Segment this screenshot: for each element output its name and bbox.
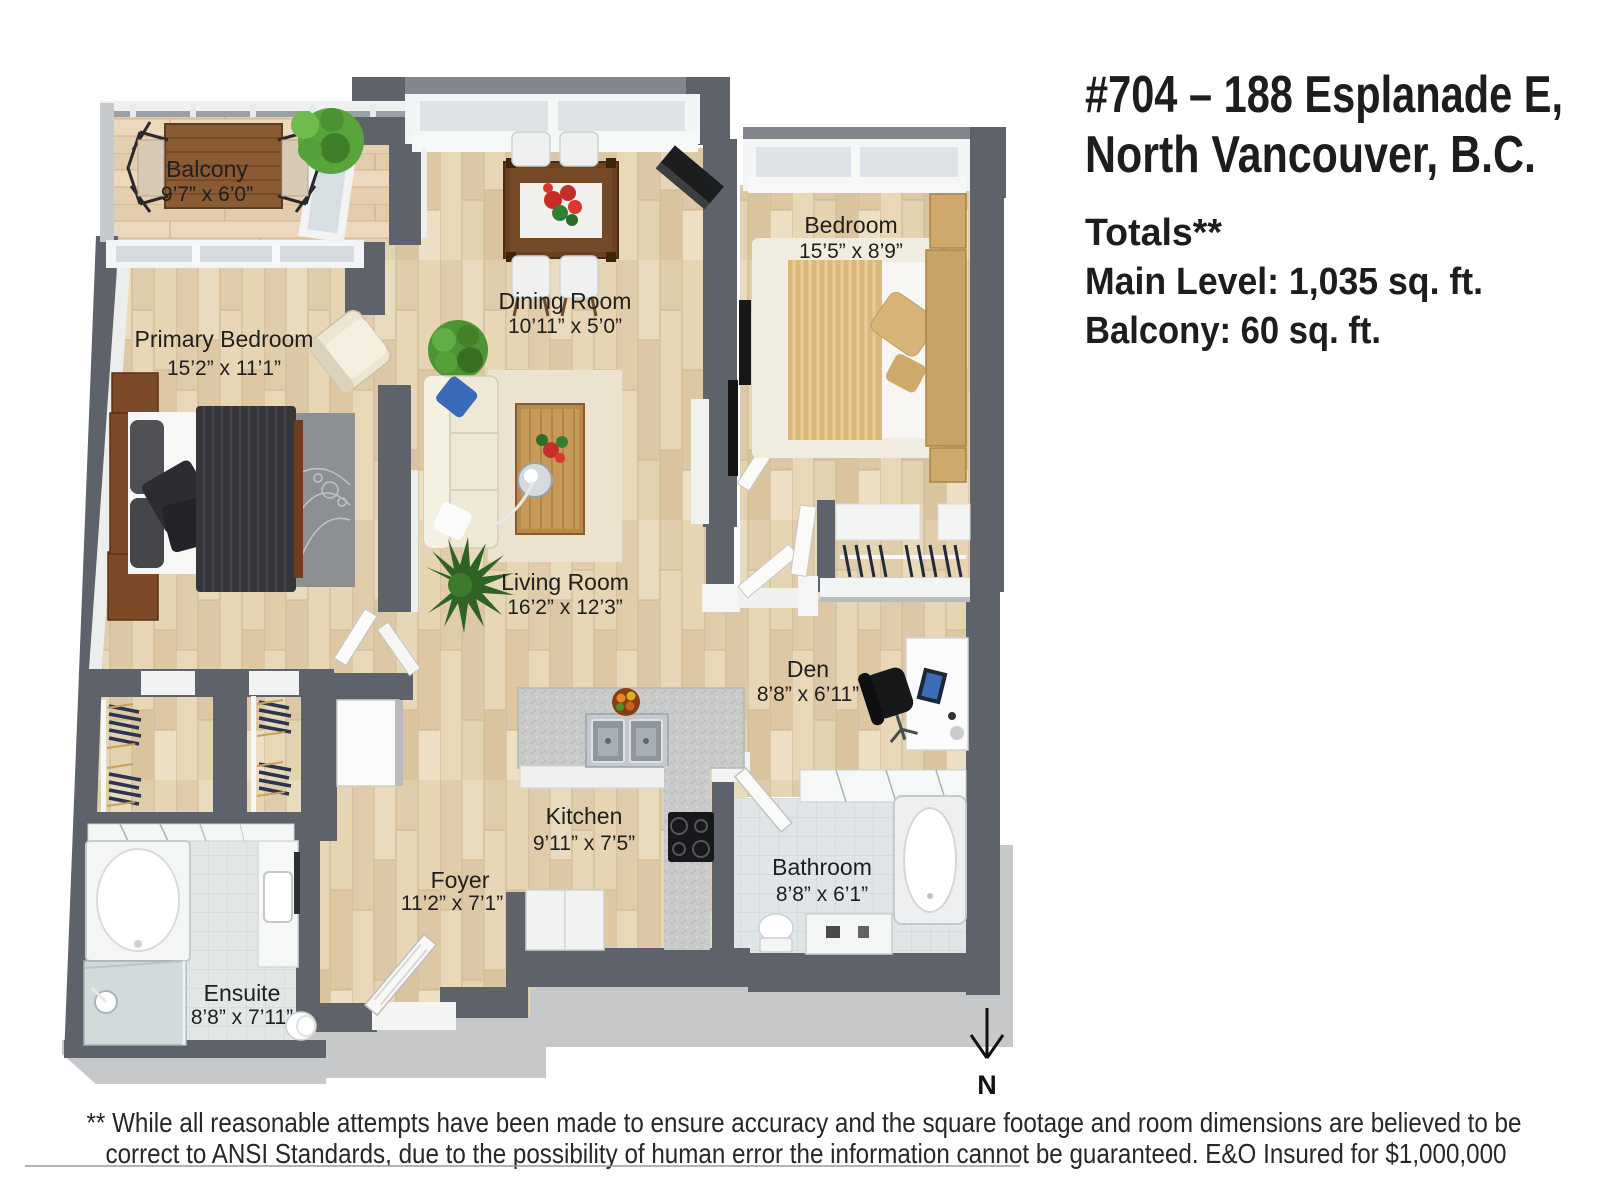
- svg-text:#704 – 188 Esplanade E,: #704 – 188 Esplanade E,: [1085, 66, 1563, 124]
- svg-text:15’5” x 8’9”: 15’5” x 8’9”: [799, 240, 903, 263]
- svg-text:correct to ANSI Standards, due: correct to ANSI Standards, due to the po…: [106, 1138, 1507, 1169]
- svg-text:** While all reasonable attemp: ** While all reasonable attempts have be…: [87, 1107, 1522, 1138]
- svg-text:16’2” x 12’3”: 16’2” x 12’3”: [507, 596, 623, 619]
- svg-text:9’11” x 7’5”: 9’11” x 7’5”: [533, 832, 635, 855]
- svg-text:Balcony: Balcony: [166, 156, 248, 182]
- svg-text:Ensuite: Ensuite: [204, 980, 281, 1006]
- svg-text:Bedroom: Bedroom: [804, 212, 897, 238]
- svg-text:Totals**: Totals**: [1085, 212, 1222, 254]
- svg-text:8’8” x 7’11”: 8’8” x 7’11”: [191, 1006, 293, 1029]
- svg-text:8’8” x 6’11”: 8’8” x 6’11”: [757, 683, 859, 706]
- svg-text:Bathroom: Bathroom: [772, 854, 872, 880]
- svg-text:10’11” x 5’0”: 10’11” x 5’0”: [508, 315, 622, 338]
- svg-text:15’2” x 11’1”: 15’2” x 11’1”: [167, 357, 281, 380]
- svg-text:Balcony: 60 sq. ft.: Balcony: 60 sq. ft.: [1085, 310, 1381, 352]
- svg-text:Main Level: 1,035 sq. ft.: Main Level: 1,035 sq. ft.: [1085, 261, 1483, 303]
- svg-text:9’7” x 6’0”: 9’7” x 6’0”: [161, 183, 253, 206]
- svg-text:Foyer: Foyer: [431, 867, 490, 893]
- svg-text:N: N: [977, 1070, 997, 1100]
- svg-text:11’2” x 7’1”: 11’2” x 7’1”: [401, 892, 503, 915]
- svg-text:8’8” x 6’1”: 8’8” x 6’1”: [776, 883, 868, 906]
- svg-text:Kitchen: Kitchen: [546, 803, 623, 829]
- svg-text:Den: Den: [787, 656, 829, 682]
- svg-text:Dining Room: Dining Room: [499, 288, 632, 314]
- svg-text:Primary Bedroom: Primary Bedroom: [135, 326, 314, 352]
- svg-text:Living Room: Living Room: [501, 569, 629, 595]
- svg-text:North Vancouver, B.C.: North Vancouver, B.C.: [1085, 126, 1536, 184]
